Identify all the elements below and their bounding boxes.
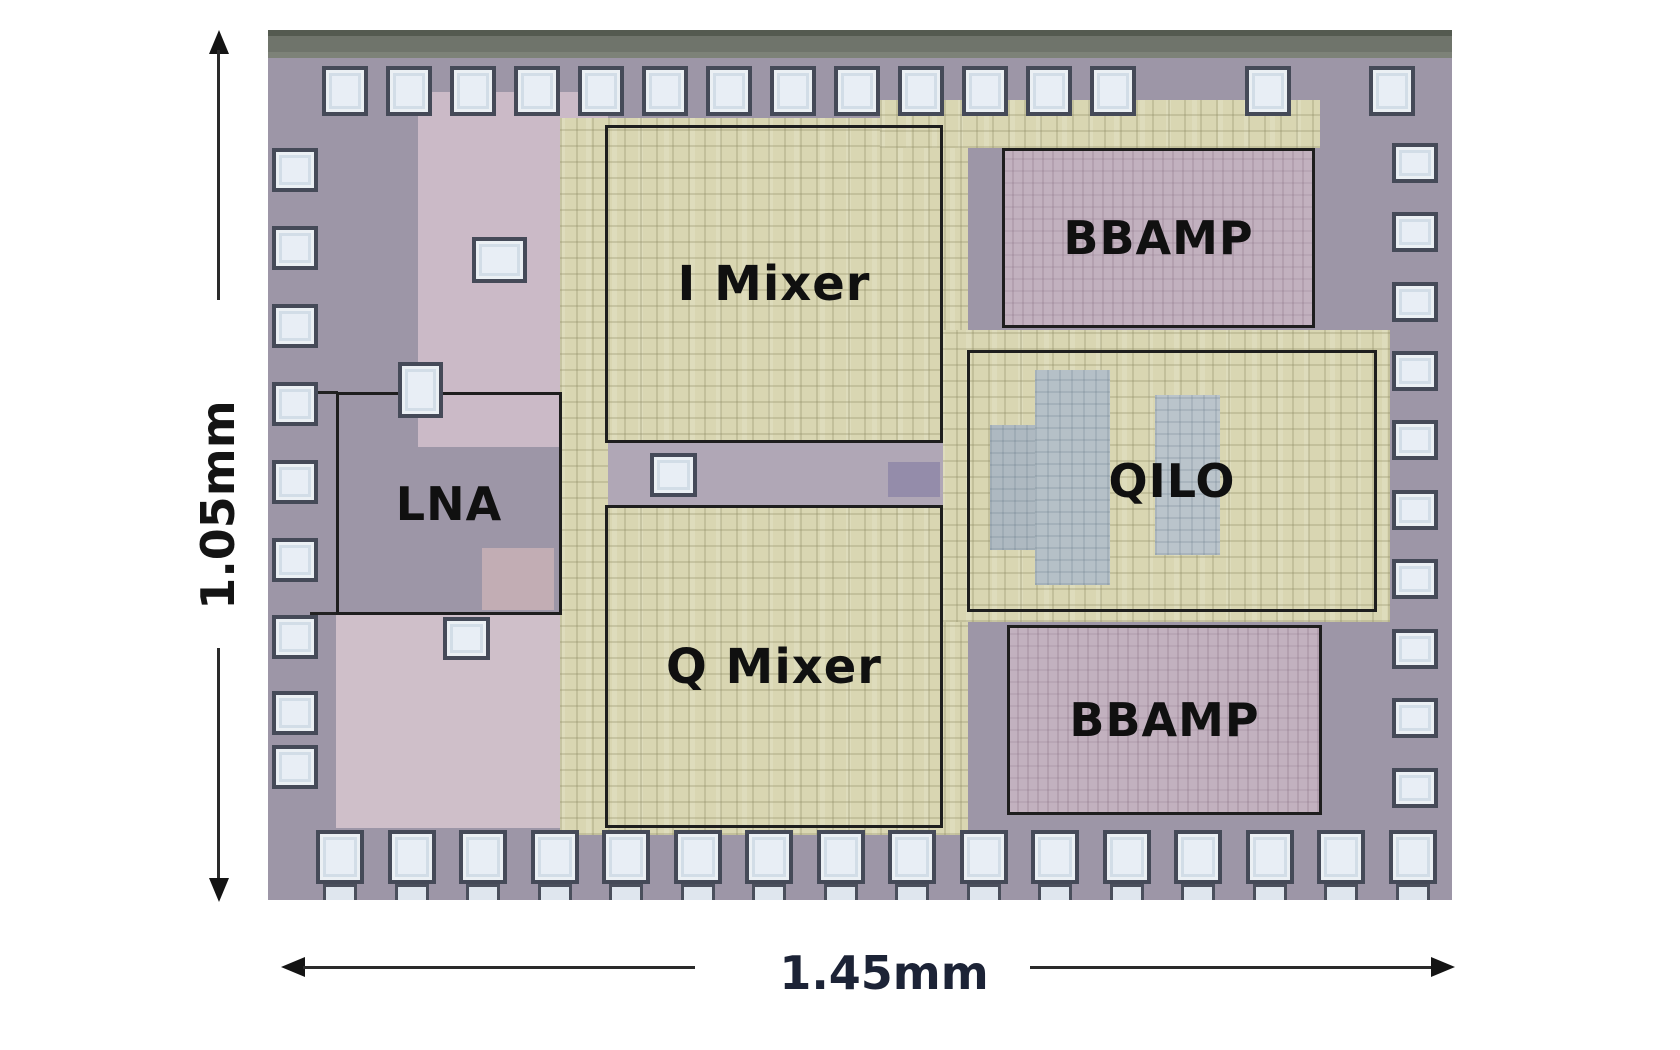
bond-pad [962,66,1008,116]
bond-pad [450,66,496,116]
bond-pad [1392,559,1438,599]
bond-pad [322,66,368,116]
bond-pad [531,830,579,884]
bond-pad [472,237,527,283]
dimension-arrow-down [209,878,229,902]
die-height-label: 1.05mm [193,345,243,665]
block-qilo-label: QILO [1109,454,1236,508]
bond-pad [650,453,697,497]
block-bbamp-top-label: BBAMP [1063,211,1253,265]
bond-pad [272,460,318,504]
pad-tab [395,884,429,900]
bond-pad [1392,768,1438,808]
dimension-line-vertical-bottom [217,648,220,880]
bond-pad [1317,830,1365,884]
bond-pad [272,691,318,735]
bond-pad [1392,698,1438,738]
dimension-line-horizontal-right [1030,966,1432,969]
bond-pad [1389,830,1437,884]
dimension-line-horizontal-left [303,966,695,969]
bond-pad [272,304,318,348]
block-i-mixer: I Mixer [605,125,943,443]
bond-pad [398,362,443,418]
block-bbamp-bottom: BBAMP [1007,625,1322,815]
pad-tab [466,884,500,900]
bond-pad [674,830,722,884]
dimension-arrow-left [281,957,305,977]
bond-pad [898,66,944,116]
bond-pad [1392,351,1438,391]
bond-pad [1392,212,1438,252]
bond-pad [443,617,490,660]
bond-pad [1174,830,1222,884]
pad-tab [323,884,357,900]
bond-pad [316,830,364,884]
block-lna-label: LNA [396,477,502,531]
bond-pad [1392,629,1438,669]
pad-tab [681,884,715,900]
bond-pad [1392,420,1438,460]
block-q-mixer-label: Q Mixer [666,639,882,695]
block-bbamp-top: BBAMP [1002,148,1315,328]
pad-tab [1253,884,1287,900]
block-bbamp-bottom-label: BBAMP [1069,693,1259,747]
bond-pad [1090,66,1136,116]
bond-pad [459,830,507,884]
pad-tab [609,884,643,900]
bond-pad [514,66,560,116]
bond-pad [1103,830,1151,884]
bond-pad [602,830,650,884]
bond-pad [272,148,318,192]
bond-pad [1392,282,1438,322]
bond-pad [1392,490,1438,530]
pad-tab [1038,884,1072,900]
dimension-line-vertical-top [217,50,220,300]
bond-pad [386,66,432,116]
bond-pad [578,66,624,116]
die-top-edge [268,30,1452,58]
bond-pad [388,830,436,884]
pad-tab [895,884,929,900]
pad-tab [1181,884,1215,900]
pad-tab [824,884,858,900]
pad-tab [1110,884,1144,900]
chip-die-photo: LNA I Mixer Q Mixer BBAMP QILO BBAMP [268,30,1452,900]
bond-pad [745,830,793,884]
bond-pad [888,830,936,884]
block-q-mixer: Q Mixer [605,505,943,828]
bond-pad [834,66,880,116]
bond-pad [1026,66,1072,116]
bond-pad [272,226,318,270]
block-i-mixer-label: I Mixer [678,256,871,312]
bond-pad [1245,66,1291,116]
bond-pad [272,538,318,582]
pad-tab [967,884,1001,900]
pad-tab [1396,884,1430,900]
bond-pad [960,830,1008,884]
region-purple-cell [888,462,940,497]
bond-pad [642,66,688,116]
bond-pad [770,66,816,116]
block-qilo: QILO [967,350,1377,612]
bond-pad [272,615,318,659]
pad-tab [538,884,572,900]
pad-tab [1324,884,1358,900]
die-width-label: 1.45mm [744,946,1024,1000]
bond-pad [706,66,752,116]
bond-pad [1246,830,1294,884]
bond-pad [1031,830,1079,884]
bond-pad [272,745,318,789]
bond-pad [1369,66,1415,116]
dimension-arrow-right [1431,957,1455,977]
block-lna: LNA [336,392,562,615]
bond-pad [1392,143,1438,183]
bond-pad [272,382,318,426]
pad-tab [752,884,786,900]
bond-pad [817,830,865,884]
